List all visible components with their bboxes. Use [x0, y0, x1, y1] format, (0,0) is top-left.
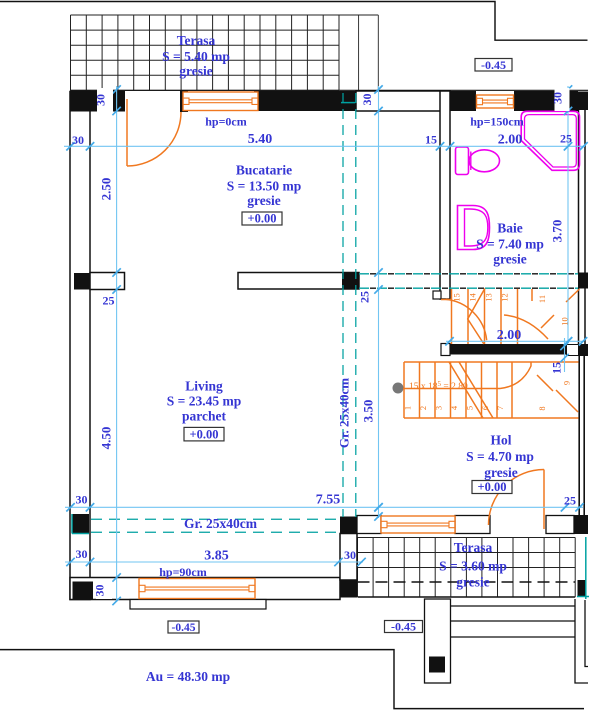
svg-text:13: 13: [484, 293, 494, 302]
svg-text:-0.45: -0.45: [172, 622, 196, 634]
svg-text:30: 30: [344, 548, 356, 562]
svg-text:30: 30: [551, 92, 565, 104]
svg-text:2: 2: [418, 406, 428, 410]
svg-text:+0.00: +0.00: [478, 480, 507, 494]
svg-text:25: 25: [564, 494, 576, 508]
svg-text:5: 5: [465, 406, 475, 410]
svg-text:gresie: gresie: [179, 64, 213, 79]
svg-text:4.50: 4.50: [99, 427, 114, 450]
svg-text:30: 30: [76, 547, 88, 561]
svg-text:15: 15: [452, 293, 462, 302]
svg-text:8: 8: [537, 406, 547, 410]
svg-text:15: 15: [425, 133, 437, 147]
svg-text:30: 30: [94, 94, 108, 106]
svg-text:3.70: 3.70: [550, 220, 565, 243]
svg-text:15: 15: [550, 362, 564, 374]
svg-text:gresie: gresie: [456, 575, 490, 590]
svg-text:30: 30: [76, 493, 88, 507]
svg-text:3.85: 3.85: [204, 549, 229, 564]
svg-text:-0.45: -0.45: [481, 58, 506, 72]
svg-text:hp=150cm: hp=150cm: [470, 115, 524, 129]
svg-text:hp=90cm: hp=90cm: [159, 565, 207, 579]
svg-text:Gr. 25x40cm: Gr. 25x40cm: [337, 378, 352, 448]
svg-text:3.50: 3.50: [361, 400, 376, 423]
svg-text:2.50: 2.50: [99, 178, 114, 201]
svg-text:11: 11: [537, 295, 547, 303]
svg-text:30: 30: [360, 94, 374, 106]
svg-text:7: 7: [495, 406, 505, 410]
svg-text:2.00: 2.00: [497, 328, 522, 343]
svg-text:3: 3: [434, 406, 444, 410]
svg-text:5.40: 5.40: [248, 132, 273, 147]
svg-text:+0.00: +0.00: [190, 427, 219, 441]
svg-text:25: 25: [560, 132, 572, 146]
svg-text:14: 14: [468, 293, 478, 302]
svg-text:2.00: 2.00: [498, 133, 523, 148]
svg-text:Terasa: Terasa: [454, 540, 493, 555]
svg-text:25: 25: [103, 294, 115, 308]
svg-text:25: 25: [358, 291, 372, 303]
svg-text:S = 23.45 mp: S = 23.45 mp: [167, 394, 241, 409]
svg-text:Au = 48.30 mp: Au = 48.30 mp: [146, 669, 230, 684]
svg-text:Terasa: Terasa: [177, 33, 216, 48]
svg-text:S = 4.70 mp: S = 4.70 mp: [466, 449, 534, 464]
svg-text:Living: Living: [185, 379, 223, 394]
svg-text:S = 5.40 mp: S = 5.40 mp: [162, 49, 230, 64]
svg-text:6: 6: [480, 406, 490, 410]
svg-text:S = 3.60 mp: S = 3.60 mp: [439, 559, 507, 574]
svg-text:Bucatarie: Bucatarie: [236, 163, 292, 178]
svg-text:12: 12: [500, 293, 510, 302]
svg-text:30: 30: [72, 133, 84, 147]
svg-text:7.55: 7.55: [316, 493, 341, 508]
svg-text:1: 1: [403, 406, 413, 410]
svg-text:hp=0cm: hp=0cm: [205, 115, 247, 129]
svg-text:gresie: gresie: [484, 465, 518, 480]
svg-text:parchet: parchet: [182, 409, 226, 424]
svg-text:9: 9: [562, 381, 572, 385]
svg-text:gresie: gresie: [247, 193, 281, 208]
svg-text:S = 7.40 mp: S = 7.40 mp: [476, 237, 544, 252]
svg-text:+0.00: +0.00: [248, 212, 277, 226]
svg-text:Gr. 25x40cm: Gr. 25x40cm: [184, 516, 258, 531]
svg-text:Baie: Baie: [497, 221, 523, 236]
svg-text:30: 30: [93, 585, 107, 597]
svg-text:gresie: gresie: [493, 252, 527, 267]
svg-text:Hol: Hol: [490, 433, 511, 448]
svg-text:-0.45: -0.45: [391, 620, 416, 634]
svg-text:S = 13.50 mp: S = 13.50 mp: [227, 179, 301, 194]
